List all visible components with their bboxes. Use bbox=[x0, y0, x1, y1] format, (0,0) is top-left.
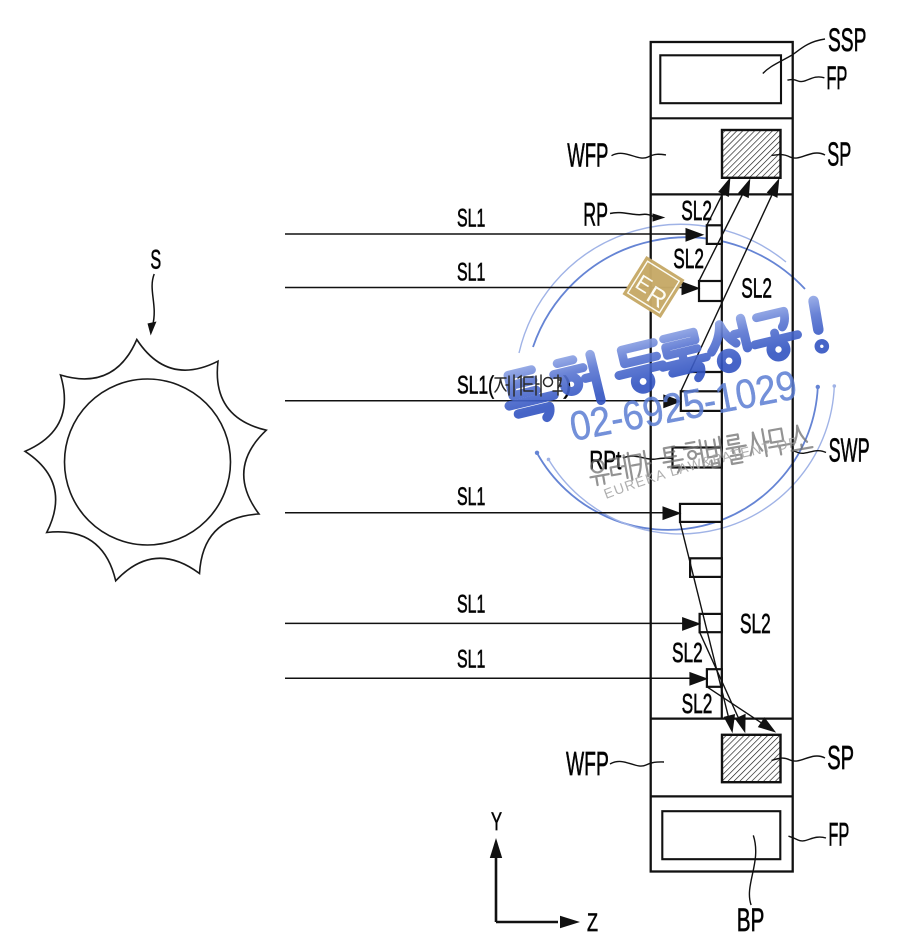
svg-text:WFP: WFP bbox=[567, 137, 608, 174]
svg-text:SL2: SL2 bbox=[681, 195, 712, 226]
svg-text:SP: SP bbox=[827, 739, 854, 776]
svg-text:WFP: WFP bbox=[566, 745, 609, 782]
svg-text:Z: Z bbox=[587, 909, 598, 937]
svg-text:SL1: SL1 bbox=[457, 483, 485, 511]
svg-text:SWP: SWP bbox=[829, 432, 870, 469]
svg-text:FP: FP bbox=[828, 817, 849, 853]
svg-text:SP: SP bbox=[827, 135, 851, 172]
svg-text:SSP: SSP bbox=[828, 22, 866, 58]
svg-text:RP: RP bbox=[583, 197, 608, 233]
svg-text:SL2: SL2 bbox=[672, 637, 703, 668]
svg-text:SL1: SL1 bbox=[457, 646, 485, 674]
svg-text:FP: FP bbox=[826, 60, 847, 96]
svg-text:BP: BP bbox=[737, 902, 765, 938]
svg-text:SL1: SL1 bbox=[457, 259, 485, 287]
svg-text:S: S bbox=[150, 245, 161, 275]
svg-text:SL1: SL1 bbox=[457, 591, 485, 619]
svg-text:SL1: SL1 bbox=[457, 204, 485, 232]
svg-text:SL2: SL2 bbox=[740, 608, 771, 639]
svg-text:SL2: SL2 bbox=[673, 243, 704, 274]
svg-text:Y: Y bbox=[491, 808, 502, 836]
svg-text:SL1(: SL1( bbox=[457, 372, 494, 400]
svg-text:SL2: SL2 bbox=[741, 272, 772, 303]
svg-text:SL2: SL2 bbox=[682, 688, 713, 719]
